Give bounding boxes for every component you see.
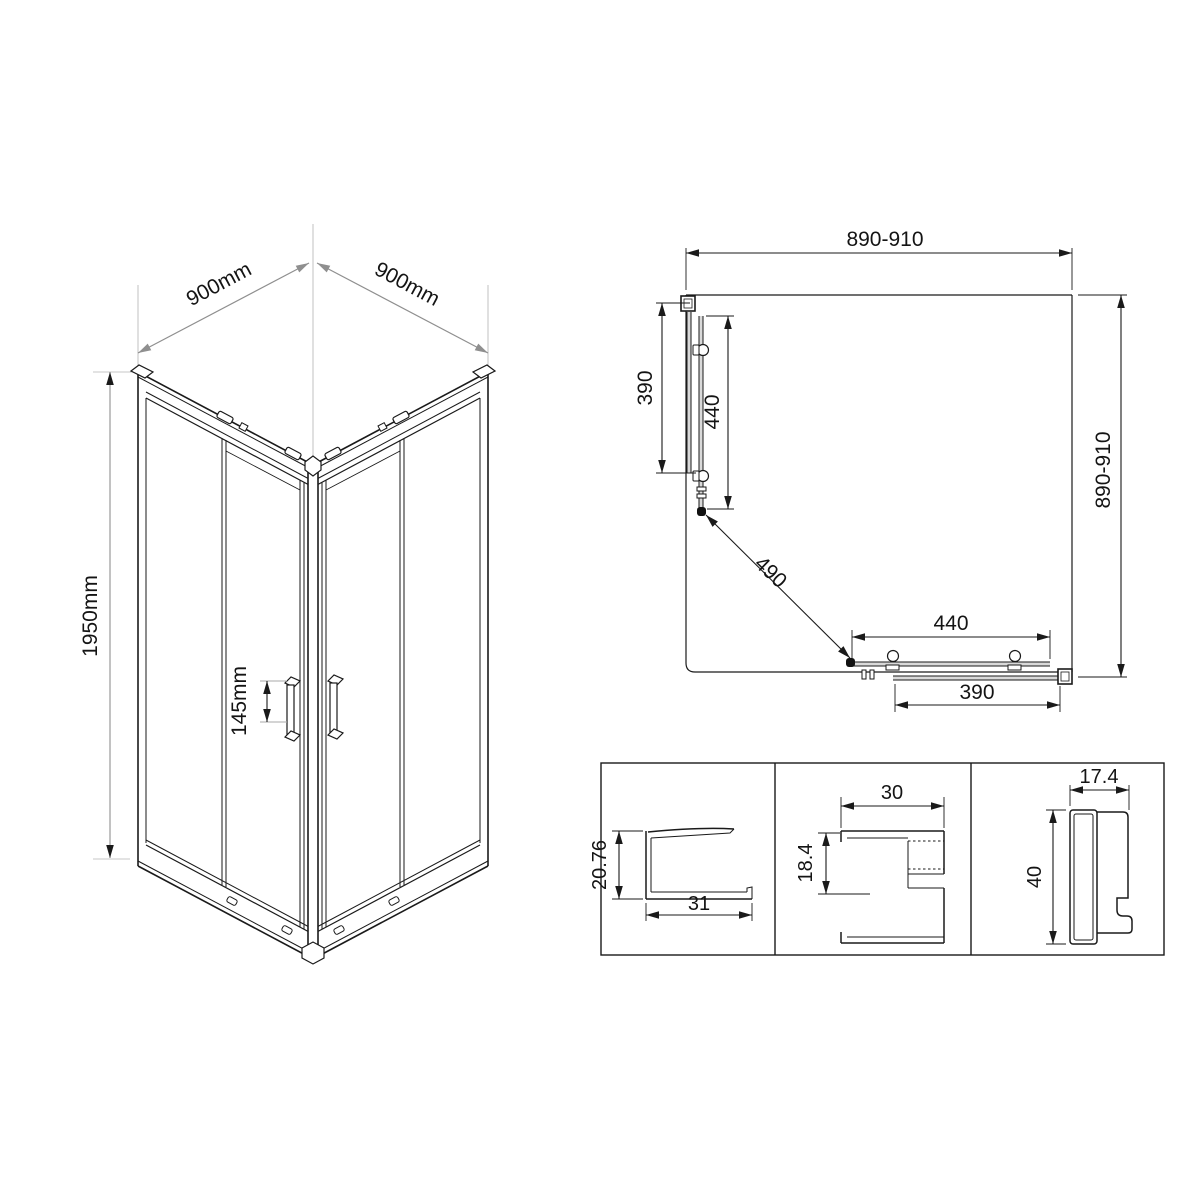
- plan-bottom-wall-assembly: [846, 651, 1072, 685]
- profile-glass-channel: 20.76 31: [589, 828, 752, 921]
- profile-sections: 20.76 31 30: [589, 763, 1164, 955]
- shower-enclosure-drawing: 900mm 900mm 1950mm: [0, 0, 1200, 1200]
- dim-bottom-door-label: 440: [933, 612, 968, 635]
- dim-left-door-label: 440: [701, 394, 724, 429]
- iso-height-dimension: 1950mm: [79, 372, 110, 858]
- dim-width-right-label: 900mm: [371, 258, 444, 311]
- dim-plan-width-label: 890-910: [846, 228, 923, 251]
- plan-left-dimensions: 390 440: [634, 303, 734, 509]
- dim-channel-width-label: 31: [688, 893, 710, 915]
- iso-right-wall: [313, 372, 488, 959]
- plan-top-dimension: 890-910: [686, 228, 1072, 290]
- iso-handle-dimension: 145mm: [228, 666, 287, 736]
- dim-channel-height-label: 20.76: [589, 840, 611, 890]
- dim-handle-label: 145mm: [228, 666, 251, 736]
- plan-right-dimension: 890-910: [1078, 295, 1127, 677]
- technical-drawing-page: 900mm 900mm 1950mm: [0, 0, 1200, 1200]
- iso-left-wall: [138, 372, 313, 959]
- profile-door-guide: 30 18.4: [795, 782, 944, 943]
- dim-guide-height-label: 18.4: [795, 844, 817, 883]
- dim-diagonal-label: 490: [750, 552, 791, 593]
- dim-width-left-label: 900mm: [183, 258, 256, 311]
- dim-wallprofile-height-label: 40: [1024, 866, 1046, 888]
- iso-door-handle-left: [285, 677, 300, 741]
- profile-wall-profile: 17.4 40: [1024, 766, 1132, 944]
- plan-view: 890-910 890-910: [634, 228, 1127, 712]
- iso-corner-post: [302, 456, 324, 964]
- dim-left-fixed-label: 390: [634, 370, 657, 405]
- dim-guide-width-label: 30: [881, 782, 903, 804]
- iso-right-wall-cap: [473, 365, 495, 378]
- iso-door-handle-right: [328, 675, 343, 739]
- plan-tray-outline: [686, 295, 1072, 672]
- dim-wallprofile-width-label: 17.4: [1080, 766, 1119, 788]
- iso-left-wall-cap: [131, 365, 153, 378]
- dim-plan-depth-label: 890-910: [1092, 431, 1115, 508]
- dim-bottom-fixed-label: 390: [959, 681, 994, 704]
- plan-diagonal-dimension: 490: [706, 515, 850, 658]
- isometric-view: 900mm 900mm 1950mm: [79, 224, 495, 964]
- iso-extension-lines: [93, 224, 488, 859]
- dim-height-label: 1950mm: [79, 575, 102, 657]
